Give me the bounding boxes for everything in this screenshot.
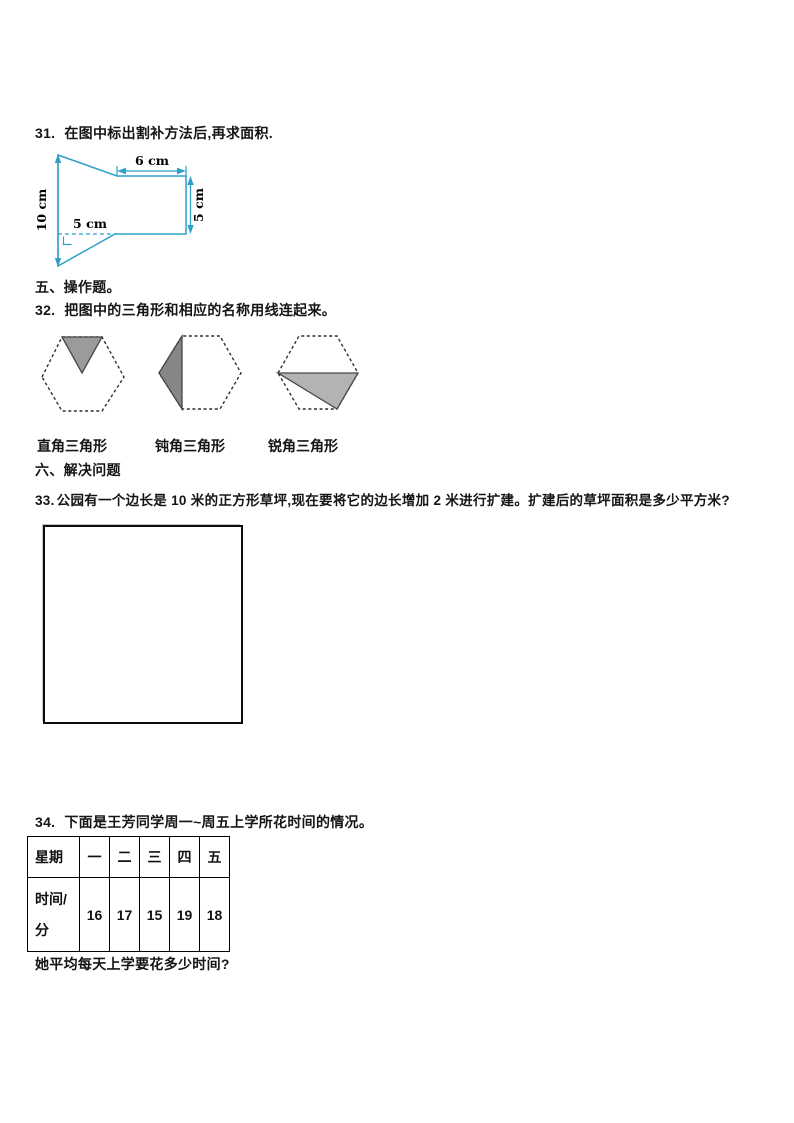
question-33-text: 公园有一个边长是 10 米的正方形草坪,现在要将它的边长增加 2 米进行扩建。扩…	[57, 493, 730, 508]
square-lawn-figure	[43, 525, 243, 724]
dim-bottom-label: 5 cm	[73, 216, 107, 231]
hexagon-2-triangle	[159, 336, 182, 409]
question-31-text: 在图中标出割补方法后,再求面积.	[64, 125, 273, 141]
dim-right-label: 5 cm	[191, 188, 206, 222]
dim-left-label: 10 cm	[35, 189, 49, 232]
question-33-line: 33.公园有一个边长是 10 米的正方形草坪,现在要将它的边长增加 2 米进行扩…	[35, 489, 730, 509]
dim-left-arrow-down	[55, 258, 61, 267]
right-angle-mark	[64, 237, 72, 245]
time-table: 星期 一 二 三 四 五 时间/分 16 17 15 19 18	[27, 836, 230, 952]
table-header-fri: 五	[200, 837, 230, 878]
dim-right-arrow-down	[187, 225, 193, 234]
table-value-wed: 15	[140, 878, 170, 952]
table-header-wed: 三	[140, 837, 170, 878]
hexagon-3-triangle	[278, 373, 358, 409]
table-header-row: 星期 一 二 三 四 五	[28, 837, 230, 878]
table-value-tue: 17	[110, 878, 140, 952]
question-31-number: 31.	[35, 125, 55, 141]
table-value-fri: 18	[200, 878, 230, 952]
question-34-prompt: 她平均每天上学要花多少时间?	[35, 954, 230, 974]
label-obtuse-triangle: 钝角三角形	[155, 436, 225, 456]
section-six-title: 六、解决问题	[35, 460, 121, 480]
question-34-text: 下面是王芳同学周一~周五上学所花时间的情况。	[64, 814, 373, 830]
table-row-label: 时间/分	[28, 878, 80, 952]
table-header-mon: 一	[80, 837, 110, 878]
area-figure: 10 cm 6 cm 5 cm 5 cm	[35, 145, 217, 277]
table-value-thu: 19	[170, 878, 200, 952]
table-header-thu: 四	[170, 837, 200, 878]
label-right-triangle: 直角三角形	[37, 436, 107, 456]
question-32-line: 32.把图中的三角形和相应的名称用线连起来。	[35, 300, 336, 320]
dim-right-arrow-up	[187, 176, 193, 185]
question-31-line: 31.在图中标出割补方法后,再求面积.	[35, 123, 273, 143]
hexagon-1-triangle	[62, 337, 102, 373]
table-header-week: 星期	[28, 837, 80, 878]
table-header-tue: 二	[110, 837, 140, 878]
question-32-number: 32.	[35, 302, 55, 318]
question-34-line: 34.下面是王芳同学周一~周五上学所花时间的情况。	[35, 812, 373, 832]
worksheet-page: 31.在图中标出割补方法后,再求面积. 10 cm 6 cm 5 cm 5 cm…	[0, 0, 794, 1123]
label-acute-triangle: 锐角三角形	[268, 436, 338, 456]
dim-top-arrow-left	[117, 168, 126, 174]
section-five-title: 五、操作题。	[35, 277, 121, 297]
question-33-number: 33.	[35, 493, 55, 508]
dim-top-label: 6 cm	[135, 153, 169, 168]
hexagon-figures	[35, 328, 365, 418]
table-values-row: 时间/分 16 17 15 19 18	[28, 878, 230, 952]
dim-top-arrow-right	[177, 168, 186, 174]
question-34-number: 34.	[35, 814, 55, 830]
table-value-mon: 16	[80, 878, 110, 952]
question-32-text: 把图中的三角形和相应的名称用线连起来。	[64, 302, 336, 318]
